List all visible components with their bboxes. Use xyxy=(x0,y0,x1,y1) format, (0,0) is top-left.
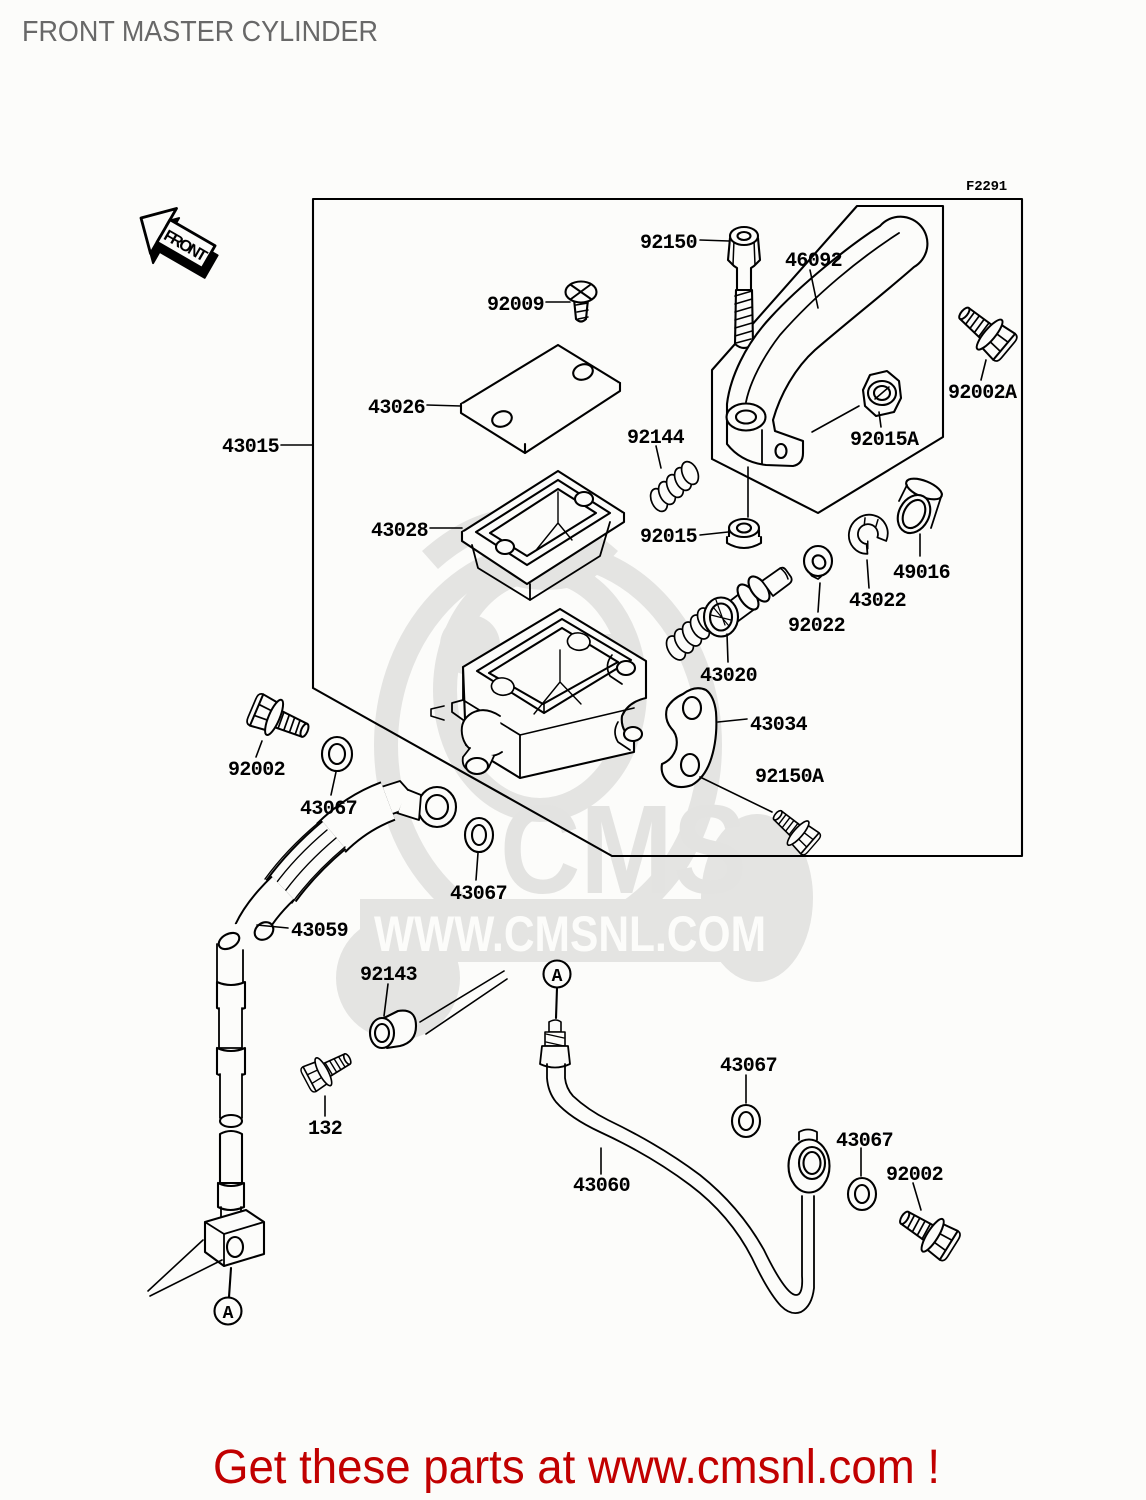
svg-text:92002: 92002 xyxy=(886,1164,943,1187)
svg-text:92150A: 92150A xyxy=(755,766,824,789)
svg-text:92144: 92144 xyxy=(627,427,685,450)
svg-text:49016: 49016 xyxy=(893,562,950,585)
svg-text:43067: 43067 xyxy=(720,1055,777,1078)
svg-text:A: A xyxy=(552,967,563,987)
svg-text:43026: 43026 xyxy=(368,397,425,420)
svg-text:43028: 43028 xyxy=(371,520,428,543)
svg-text:43034: 43034 xyxy=(750,714,808,737)
svg-text:43022: 43022 xyxy=(849,590,906,613)
svg-text:A: A xyxy=(223,1304,234,1324)
svg-text:92150: 92150 xyxy=(640,232,697,255)
svg-text:132: 132 xyxy=(308,1118,342,1141)
svg-text:46092: 46092 xyxy=(785,250,842,273)
svg-text:43067: 43067 xyxy=(836,1130,893,1153)
svg-text:43015: 43015 xyxy=(222,436,279,459)
svg-text:Get these parts at www.cmsnl.c: Get these parts at www.cmsnl.com ! xyxy=(213,1441,940,1494)
svg-text:43020: 43020 xyxy=(700,665,757,688)
svg-text:92022: 92022 xyxy=(788,615,845,638)
svg-text:92009: 92009 xyxy=(487,294,544,317)
svg-text:WWW.CMSNL.COM: WWW.CMSNL.COM xyxy=(374,906,766,962)
svg-text:43060: 43060 xyxy=(573,1175,630,1198)
svg-text:43067: 43067 xyxy=(300,798,357,821)
svg-text:92002A: 92002A xyxy=(948,382,1017,405)
svg-text:92015A: 92015A xyxy=(850,429,919,452)
svg-text:92002: 92002 xyxy=(228,759,285,782)
svg-text:43059: 43059 xyxy=(291,920,348,943)
svg-text:CMS: CMS xyxy=(500,779,747,920)
svg-text:FRONT MASTER CYLINDER: FRONT MASTER CYLINDER xyxy=(22,16,378,48)
svg-text:43067: 43067 xyxy=(450,883,507,906)
svg-text:92143: 92143 xyxy=(360,964,417,987)
svg-text:F2291: F2291 xyxy=(966,179,1007,195)
svg-text:92015: 92015 xyxy=(640,526,697,549)
